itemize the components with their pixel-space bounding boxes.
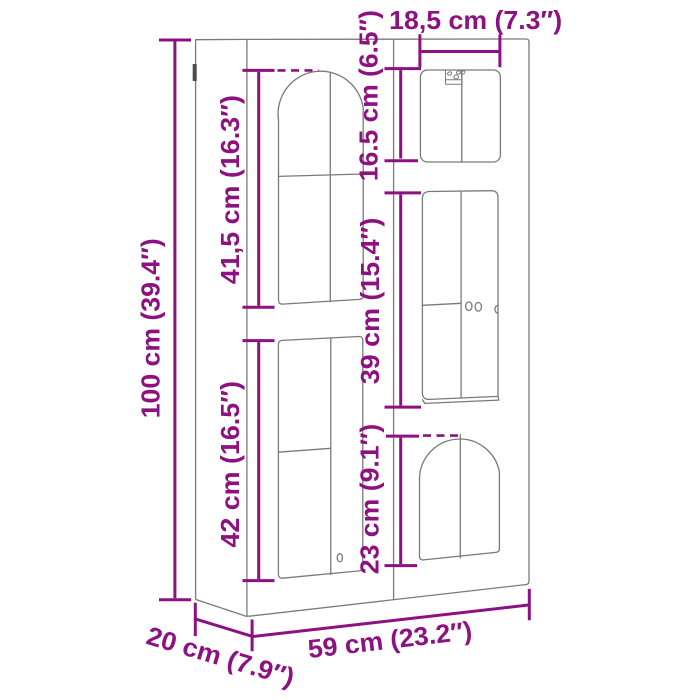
svg-text:42 cm (16.5″): 42 cm (16.5″) [215,381,245,548]
svg-text:41,5 cm (16.3″): 41,5 cm (16.3″) [215,95,245,284]
svg-text:23 cm (9.1″): 23 cm (9.1″) [355,424,385,575]
svg-text:16.5 cm (6.5″): 16.5 cm (6.5″) [353,10,383,181]
svg-text:39 cm (15.4″): 39 cm (15.4″) [355,218,385,385]
svg-text:18,5 cm (7.3″): 18,5 cm (7.3″) [389,5,562,35]
svg-text:100 cm (39.4″): 100 cm (39.4″) [136,238,166,418]
